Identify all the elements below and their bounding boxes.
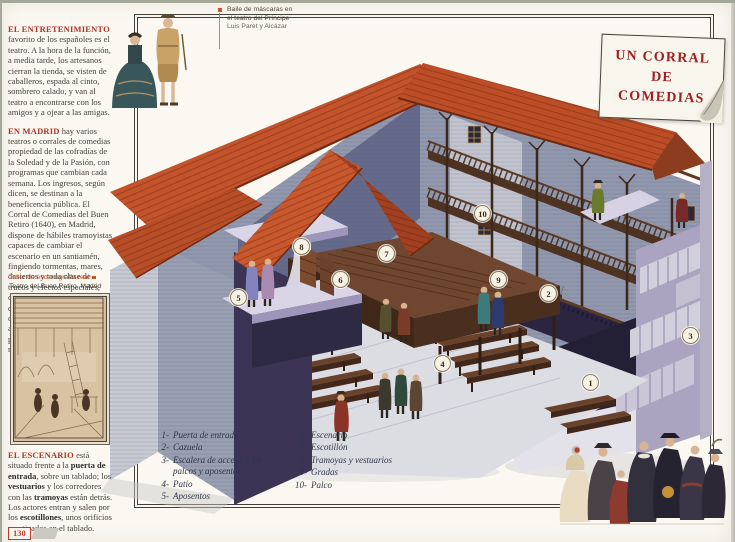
title-line1: UN CORRAL: [615, 46, 711, 70]
legend-item: 10-Palco: [292, 480, 394, 491]
legend-item: 6-Escenario: [292, 430, 394, 441]
paragraph-text: favorito de los españoles es el teatro. …: [8, 34, 111, 117]
legend-column-2: 6-Escenario7-Escotillón8-Tramoyas y vest…: [292, 430, 394, 503]
lead-madrid: EN MADRID: [8, 126, 60, 136]
legend-item-label: Palco: [311, 480, 332, 491]
legend-item: 7-Escotillón: [292, 442, 394, 453]
legend-item-label: Escenario: [311, 430, 348, 441]
engraving-sketch: [14, 297, 104, 439]
engraving-caption-line1: Taller de escenografía real: [9, 274, 89, 281]
engraving-caption: Taller de escenografía real Teatro del B…: [9, 274, 109, 291]
legend-item: 3-Escalera de acceso a los palcos y apos…: [154, 455, 274, 478]
legend-item-number: 5-: [154, 491, 169, 502]
paragraph-text: está situado frente a la puerta de entra…: [8, 450, 112, 533]
legend-item-label: Tramoyas y vestuarios: [311, 455, 392, 466]
legend-item-label: Escotillón: [311, 442, 348, 453]
page-number: 130: [8, 527, 57, 540]
legend-item-number: 10-: [292, 480, 307, 491]
legend-item-label: Patio: [173, 479, 193, 490]
legend-item-label: Cazuela: [173, 442, 203, 453]
engraving-image: [13, 296, 107, 442]
painting-caption-artist: Luis Paret y Alcázar: [227, 23, 311, 32]
book-page: { "page": { "number": "130" }, "title_bo…: [0, 0, 735, 542]
legend-item-number: 3-: [154, 455, 169, 478]
page-number-tab: [31, 528, 59, 539]
legend-item: 5-Aposentos: [154, 491, 274, 502]
legend-item-number: 2-: [154, 442, 169, 453]
legend-item: 8-Tramoyas y vestuarios: [292, 455, 394, 466]
engraving-caption-line2: Teatro del Buen Retiro, Madrid: [9, 283, 109, 292]
legend-item-number: 7-: [292, 442, 307, 453]
figure-top-left-lady: [112, 34, 157, 108]
painting-caption-line2: el teatro del Príncipe: [227, 15, 311, 24]
legend-item-number: 1-: [154, 430, 169, 441]
title-line2: DE: [651, 68, 674, 89]
paragraph-entretenimiento: EL ENTRETENIMIENTO favorito de los españ…: [8, 24, 113, 118]
legend-item: 4-Patio: [154, 479, 274, 490]
painting-caption-line1: Baile de máscaras en: [227, 6, 311, 15]
legend-item: 9-Gradas: [292, 467, 394, 478]
illustration-legend: 1-Puerta de entrada2-Cazuela3-Escalera d…: [154, 430, 394, 503]
lead-entretenimiento: EL ENTRETENIMIENTO: [8, 24, 110, 34]
painting-caption: Baile de máscaras en el teatro del Prínc…: [227, 6, 311, 32]
legend-item-number: 9-: [292, 467, 307, 478]
legend-item-label: Escalera de acceso a los palcos y aposen…: [173, 455, 274, 478]
caption-leader-line: [219, 13, 220, 49]
legend-item-number: 4-: [154, 479, 169, 490]
figure-top-left-man: [157, 14, 187, 104]
legend-item-label: Puerta de entrada: [173, 430, 239, 441]
lead-escenario: EL ESCENARIO: [8, 450, 74, 460]
caption-bullet-icon: [92, 276, 96, 280]
caption-bullet-icon: [218, 8, 222, 12]
paragraph-escenario: EL ESCENARIO está situado frente a la pu…: [8, 450, 115, 533]
legend-item-label: Gradas: [311, 467, 338, 478]
page-number-value: 130: [8, 527, 31, 540]
page-curl-icon: [689, 78, 725, 125]
legend-column-1: 1-Puerta de entrada2-Cazuela3-Escalera d…: [154, 430, 274, 503]
legend-item-label: Aposentos: [173, 491, 210, 502]
legend-item: 2-Cazuela: [154, 442, 274, 453]
legend-item: 1-Puerta de entrada: [154, 430, 274, 441]
legend-item-number: 6-: [292, 430, 307, 441]
legend-item-number: 8-: [292, 455, 307, 466]
chapter-title-box: UN CORRAL DE COMEDIAS: [598, 34, 725, 123]
